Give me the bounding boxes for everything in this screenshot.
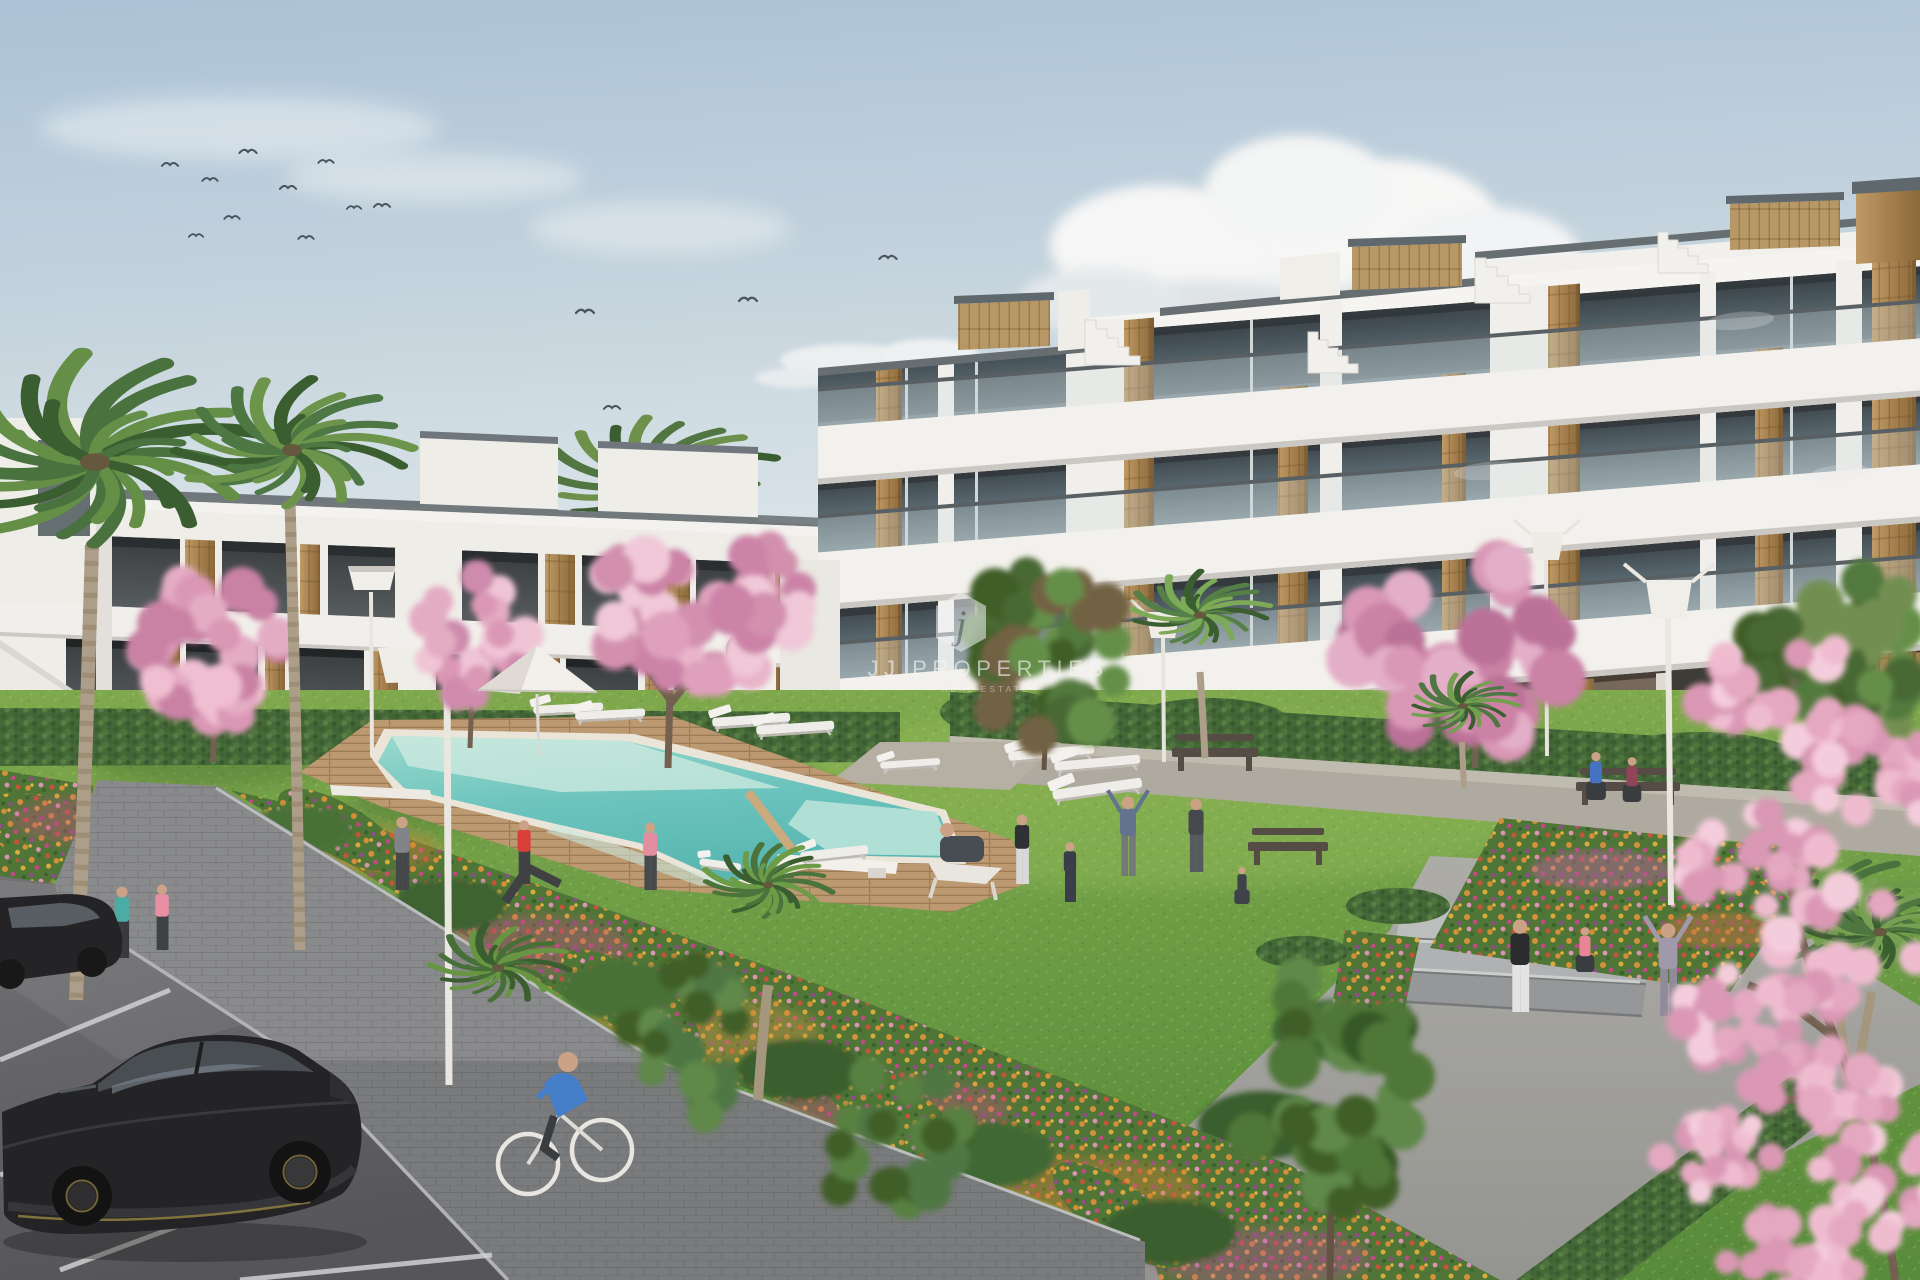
svg-text:JJ PROPERTIES: JJ PROPERTIES (867, 656, 1108, 681)
svg-text:REAL ESTATE: REAL ESTATE (941, 684, 1030, 694)
